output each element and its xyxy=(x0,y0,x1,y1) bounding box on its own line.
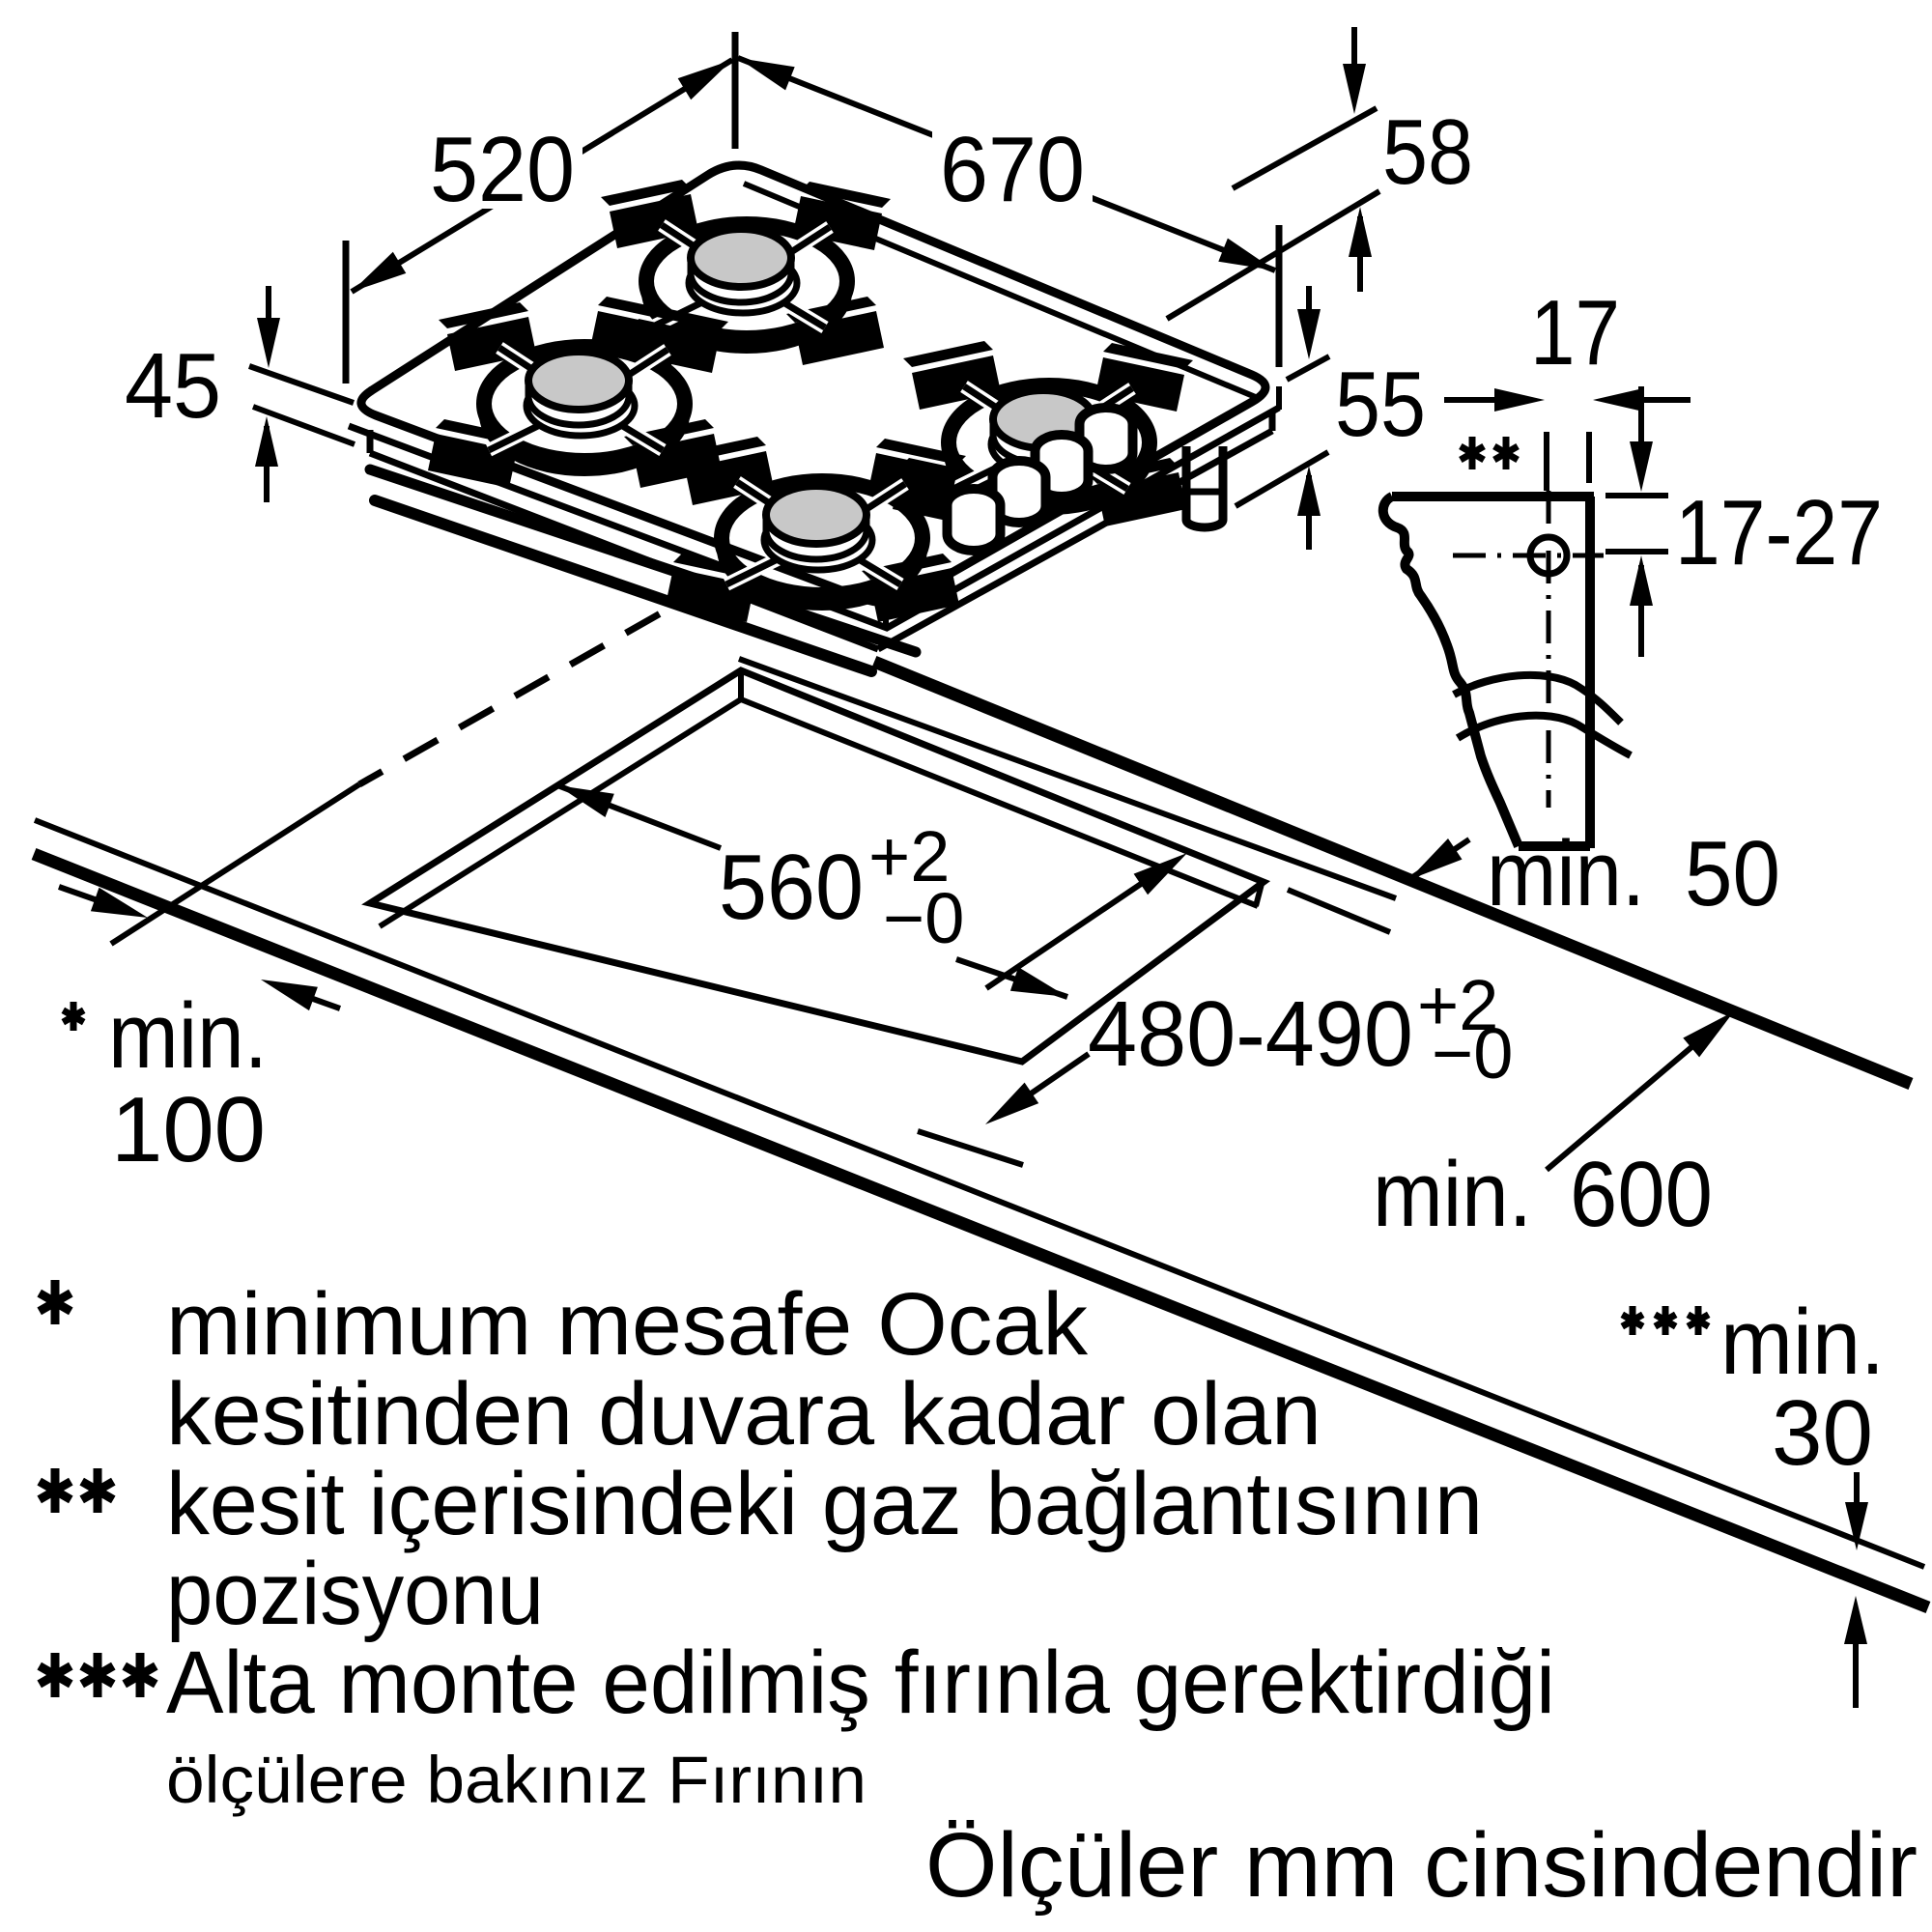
svg-text:100: 100 xyxy=(111,1078,266,1181)
svg-text:50: 50 xyxy=(1685,822,1780,925)
svg-text:17-27: 17-27 xyxy=(1675,481,1883,584)
svg-text:480-490: 480-490 xyxy=(1088,982,1413,1086)
svg-text:Alta monte edilmiş fırınla ger: Alta monte edilmiş fırınla gerektirdiği xyxy=(166,1634,1555,1732)
svg-text:min.: min. xyxy=(1487,822,1645,925)
svg-text:kesit içerisindeki gaz bağlant: kesit içerisindeki gaz bağlantısının xyxy=(166,1455,1483,1553)
svg-text:600: 600 xyxy=(1570,1143,1713,1246)
svg-text:minimum mesafe Ocak: minimum mesafe Ocak xyxy=(166,1275,1089,1374)
svg-text:17: 17 xyxy=(1530,281,1620,384)
svg-text:min.: min. xyxy=(1720,1291,1885,1394)
svg-text:pozisyonu: pozisyonu xyxy=(166,1545,544,1643)
svg-text:58: 58 xyxy=(1382,100,1473,204)
svg-text:520: 520 xyxy=(430,118,575,221)
svg-text:45: 45 xyxy=(125,334,221,438)
svg-text:min.: min. xyxy=(1373,1143,1532,1246)
svg-text:ölçülere bakınız Fırının: ölçülere bakınız Fırının xyxy=(166,1743,867,1817)
svg-text:kesitinden duvara kadar olan: kesitinden duvara kadar olan xyxy=(166,1365,1321,1463)
svg-text:−0: −0 xyxy=(1432,1013,1513,1094)
svg-text:min.: min. xyxy=(108,984,268,1088)
svg-text:55: 55 xyxy=(1335,353,1426,456)
svg-text:560: 560 xyxy=(719,836,864,939)
svg-text:Ölçüler mm cinsindendir: Ölçüler mm cinsindendir xyxy=(925,1814,1918,1917)
svg-text:30: 30 xyxy=(1772,1381,1873,1485)
svg-text:670: 670 xyxy=(940,118,1085,221)
svg-text:−0: −0 xyxy=(883,878,964,958)
